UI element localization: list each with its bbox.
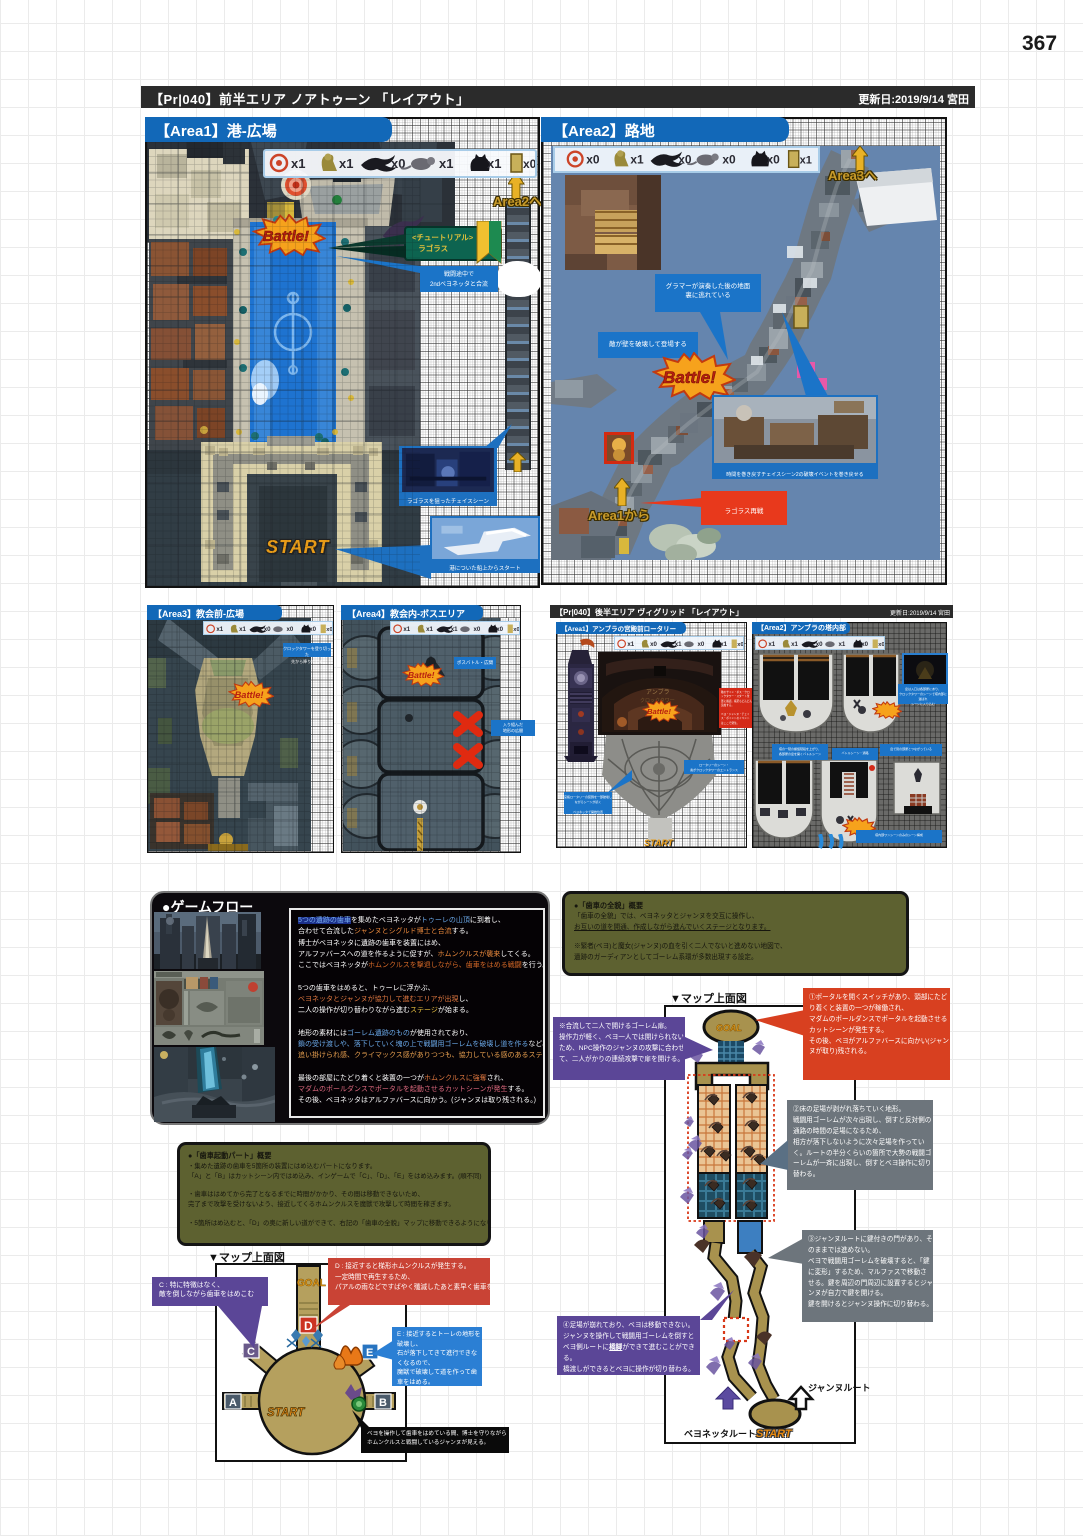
svg-text:x0: x0	[309, 626, 316, 633]
svg-text:x1: x1	[403, 626, 410, 633]
svg-text:GOAL: GOAL	[297, 1278, 326, 1289]
svg-text:x0: x0	[523, 157, 535, 171]
svg-text:x1: x1	[487, 156, 501, 171]
svg-text:x1: x1	[768, 641, 775, 648]
svg-text:x0: x0	[650, 641, 657, 648]
svg-text:x0: x0	[286, 626, 293, 633]
svg-text:x1: x1	[675, 641, 682, 648]
svg-text:x0: x0	[264, 626, 271, 633]
svg-text:x1: x1	[791, 641, 798, 648]
svg-text:x0: x0	[878, 642, 884, 648]
svg-text:x1: x1	[216, 626, 223, 633]
svg-text:Battle!: Battle!	[408, 670, 435, 680]
svg-text:x1: x1	[627, 641, 634, 648]
svg-text:x0: x0	[697, 641, 704, 648]
svg-text:x0: x0	[326, 627, 332, 633]
svg-text:x1: x1	[451, 626, 458, 633]
svg-text:x0: x0	[586, 153, 600, 167]
svg-text:x1: x1	[439, 156, 453, 171]
svg-text:x1: x1	[630, 153, 644, 167]
svg-text:x0: x0	[722, 153, 736, 167]
svg-text:x1: x1	[291, 156, 305, 171]
svg-text:x0: x0	[496, 626, 503, 633]
svg-text:x1: x1	[339, 156, 353, 171]
svg-text:Battle!: Battle!	[647, 707, 671, 716]
svg-text:x0: x0	[767, 153, 781, 167]
svg-text:x0: x0	[737, 642, 743, 648]
svg-text:GOAL: GOAL	[716, 1023, 742, 1033]
svg-text:x0: x0	[473, 626, 480, 633]
svg-text:x1: x1	[800, 155, 812, 167]
svg-text:Battle!: Battle!	[663, 368, 716, 387]
svg-text:x1: x1	[426, 626, 433, 633]
svg-text:START: START	[267, 1407, 305, 1419]
svg-text:B: B	[379, 1397, 387, 1409]
svg-text:Battle!: Battle!	[235, 690, 264, 700]
svg-text:アンブラ: アンブラ	[646, 688, 670, 696]
svg-text:x1: x1	[239, 626, 246, 633]
svg-text:x1: x1	[838, 641, 845, 648]
svg-text:A: A	[229, 1397, 237, 1409]
svg-text:x1: x1	[720, 641, 727, 648]
svg-text:x0: x0	[816, 641, 823, 648]
svg-text:x0: x0	[513, 627, 519, 633]
svg-text:x0: x0	[861, 641, 868, 648]
